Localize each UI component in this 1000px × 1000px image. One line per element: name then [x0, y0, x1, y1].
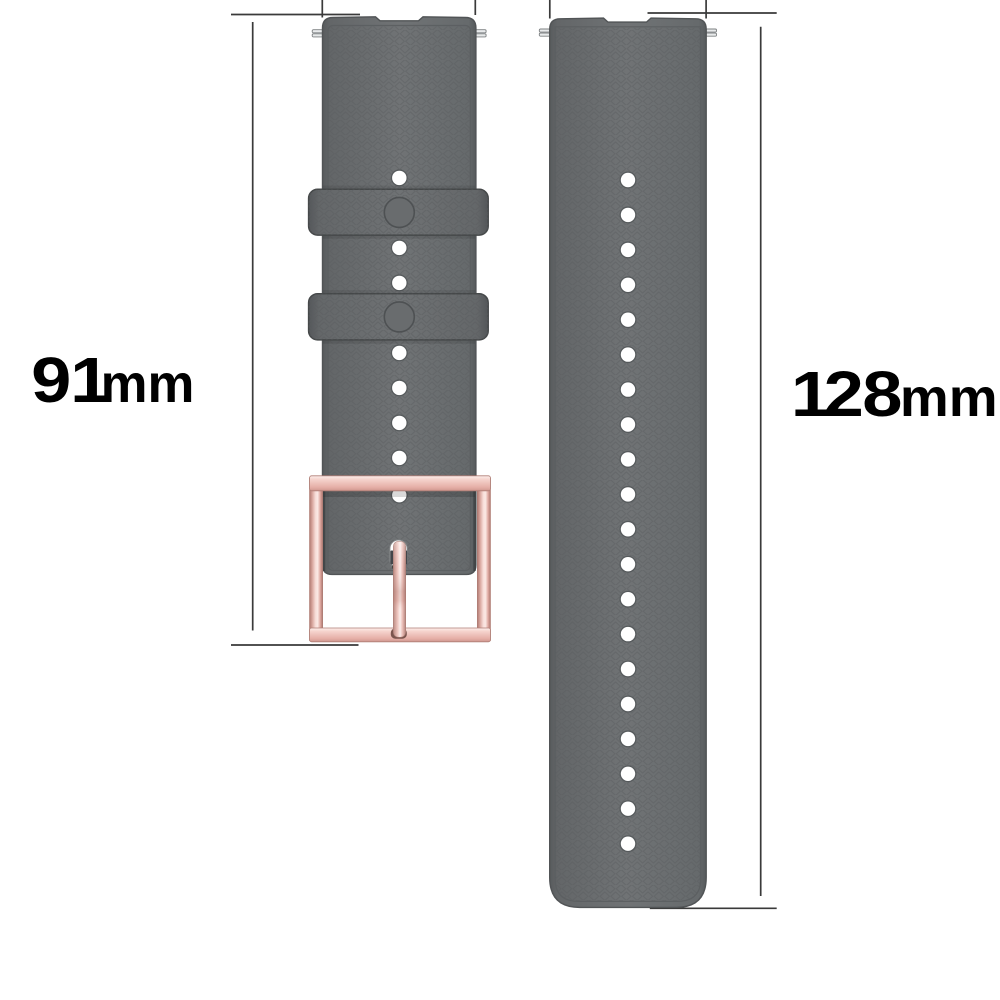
svg-text:128mm: 128mm	[791, 359, 998, 430]
svg-text:91mm: 91mm	[31, 345, 194, 416]
